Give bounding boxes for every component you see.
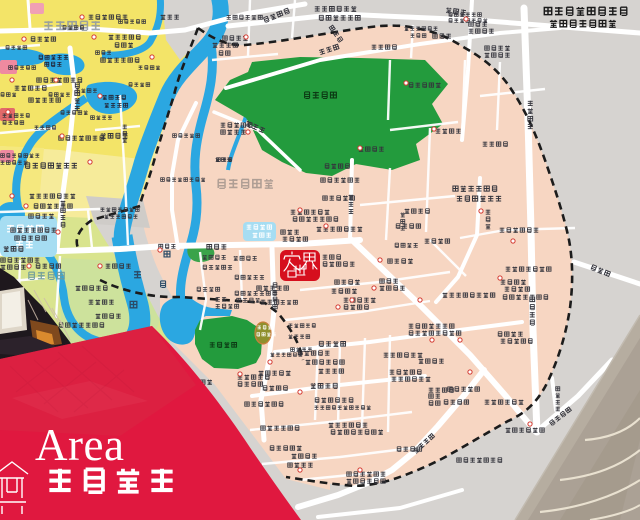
svg-text:Area: Area: [35, 420, 124, 470]
